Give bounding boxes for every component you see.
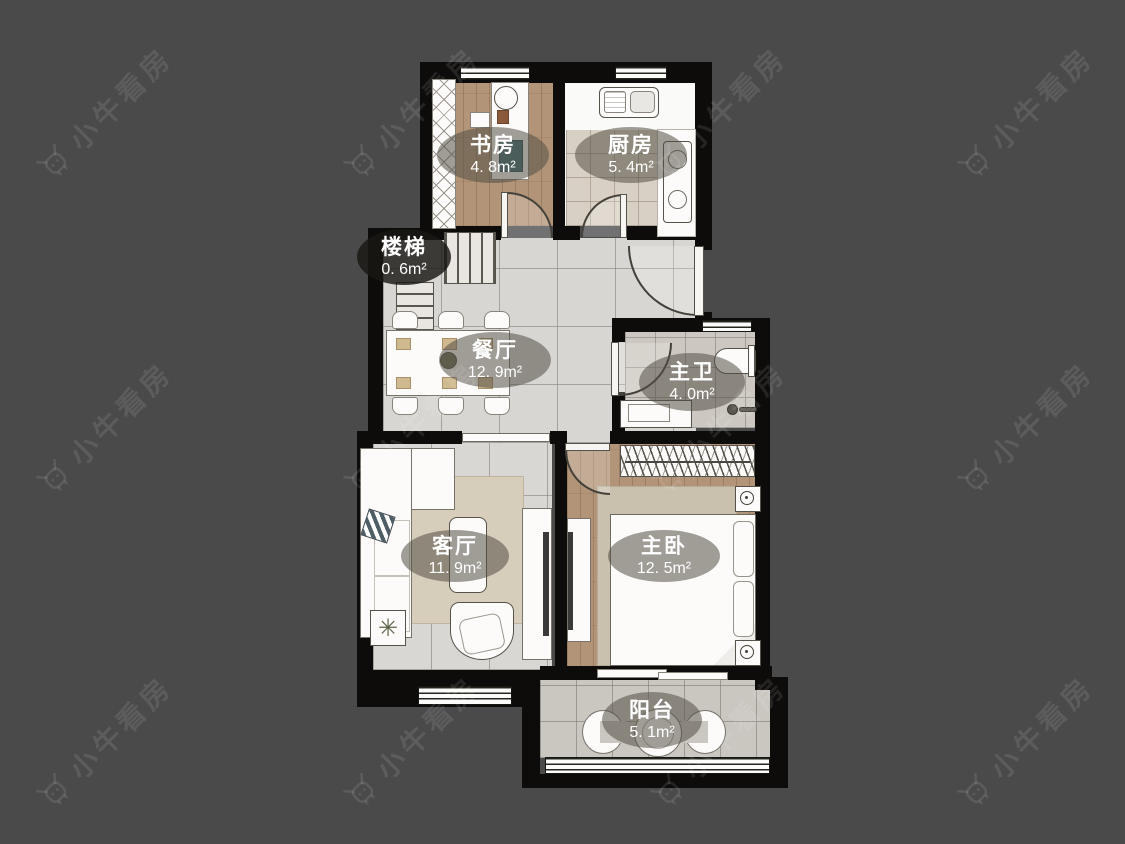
kitchen-sink-basin: [630, 91, 655, 113]
study-wardrobe: [432, 79, 456, 229]
bath-window: [702, 320, 752, 332]
wall-stairs-cap: [383, 228, 437, 240]
balcony-chair-right-seat: [682, 721, 708, 743]
dining-chair: [392, 397, 418, 415]
bull-logo-icon: [952, 139, 1000, 187]
nightstand: [735, 640, 761, 666]
tv-living: [543, 532, 549, 636]
kitchen-burner-1: [668, 150, 687, 169]
side-table: ✳: [370, 610, 406, 646]
stairs-upper-run: [444, 232, 496, 284]
study-bench: [470, 112, 490, 128]
bull-logo-icon: [31, 454, 79, 502]
bedroom-door-leaf: [565, 443, 610, 451]
dining-placemat: [396, 338, 411, 350]
dining-placemat: [478, 338, 493, 350]
watermark-text: 小牛看房: [59, 37, 181, 159]
dining-living-threshold: [462, 433, 550, 442]
nightstand-lamp: [740, 645, 754, 659]
study-desk-decor: [497, 110, 509, 124]
bed-pillow: [733, 581, 754, 637]
dining-placemat: [442, 338, 457, 350]
watermark: 小牛看房: [29, 666, 181, 818]
study-desk-chair: [494, 86, 518, 110]
wall-study-kitchen: [553, 83, 565, 226]
living-window: [418, 686, 512, 705]
watermark: 小牛看房: [29, 352, 181, 504]
dining-chair: [484, 397, 510, 415]
nightstand: [735, 486, 761, 512]
study-window: [460, 66, 530, 80]
wall-bath-left-upper: [612, 332, 625, 342]
nightstand-lamp: [740, 491, 754, 505]
wall-kitchen-bottom-l: [553, 226, 580, 240]
bath-vanity-sink: [628, 404, 670, 422]
bull-logo-icon: [952, 768, 1000, 816]
bedroom-wardrobe: [620, 445, 755, 477]
dining-placemat: [442, 377, 457, 389]
bull-logo-icon: [31, 139, 79, 187]
kitchen-door-leaf: [620, 194, 627, 238]
bath-toilet-tank: [748, 345, 755, 377]
wall-bedroom-top: [610, 431, 770, 444]
side-table-plant: ✳: [371, 611, 405, 645]
bath-door-leaf: [611, 342, 619, 396]
floor-plan-canvas: ✳ 书房 4. 8m² 厨房 5. 4m² 楼梯 0. 6m² 餐厅 12. 9…: [0, 0, 1125, 844]
bull-logo-icon: [31, 768, 79, 816]
wardrobe-rail: [625, 461, 750, 463]
wall-balcony-bottom: [522, 774, 788, 788]
dining-chair: [438, 311, 464, 329]
balcony-sliding-door-panel-1: [597, 669, 667, 678]
balcony-window: [545, 757, 770, 774]
balcony-table-top: [642, 717, 674, 749]
bed-pillow: [733, 521, 754, 577]
kitchen-sink-drainer: [604, 91, 626, 113]
watermark-text: 小牛看房: [980, 37, 1102, 159]
bull-logo-icon: [338, 139, 386, 187]
entry-door-leaf: [694, 246, 704, 316]
watermark-text: 小牛看房: [980, 666, 1102, 788]
dining-placemat: [478, 377, 493, 389]
wall-dining-living-l: [363, 431, 462, 444]
watermark-text: 小牛看房: [59, 666, 181, 788]
balcony-sliding-door-panel-2: [658, 672, 728, 680]
study-door-leaf: [501, 192, 508, 238]
dining-placemat: [396, 377, 411, 389]
dining-chair: [484, 311, 510, 329]
watermark-text: 小牛看房: [980, 352, 1102, 474]
watermark: 小牛看房: [950, 666, 1102, 818]
tv-bedroom: [568, 532, 573, 630]
dining-centerpiece-plant: [440, 352, 457, 369]
bull-logo-icon: [338, 768, 386, 816]
watermark: 小牛看房: [29, 37, 181, 189]
wall-top-right: [695, 83, 712, 250]
dining-chair: [438, 397, 464, 415]
watermark: 小牛看房: [950, 352, 1102, 504]
bath-shower-head: [727, 404, 738, 415]
watermark-text: 小牛看房: [59, 352, 181, 474]
balcony-chair-left-seat: [600, 721, 626, 743]
coffee-table: [449, 517, 487, 593]
wall-balcony-right: [770, 677, 788, 788]
bath-shower-arm: [739, 407, 757, 412]
wall-living-bedroom: [555, 442, 567, 670]
bull-logo-icon: [952, 454, 1000, 502]
wall-balcony-left: [522, 670, 540, 786]
kitchen-window: [615, 66, 667, 80]
study-monitor: [499, 140, 523, 172]
watermark: 小牛看房: [950, 37, 1102, 189]
wall-mid-left: [368, 228, 383, 443]
kitchen-burner-2: [668, 190, 687, 209]
dining-chair: [392, 311, 418, 329]
